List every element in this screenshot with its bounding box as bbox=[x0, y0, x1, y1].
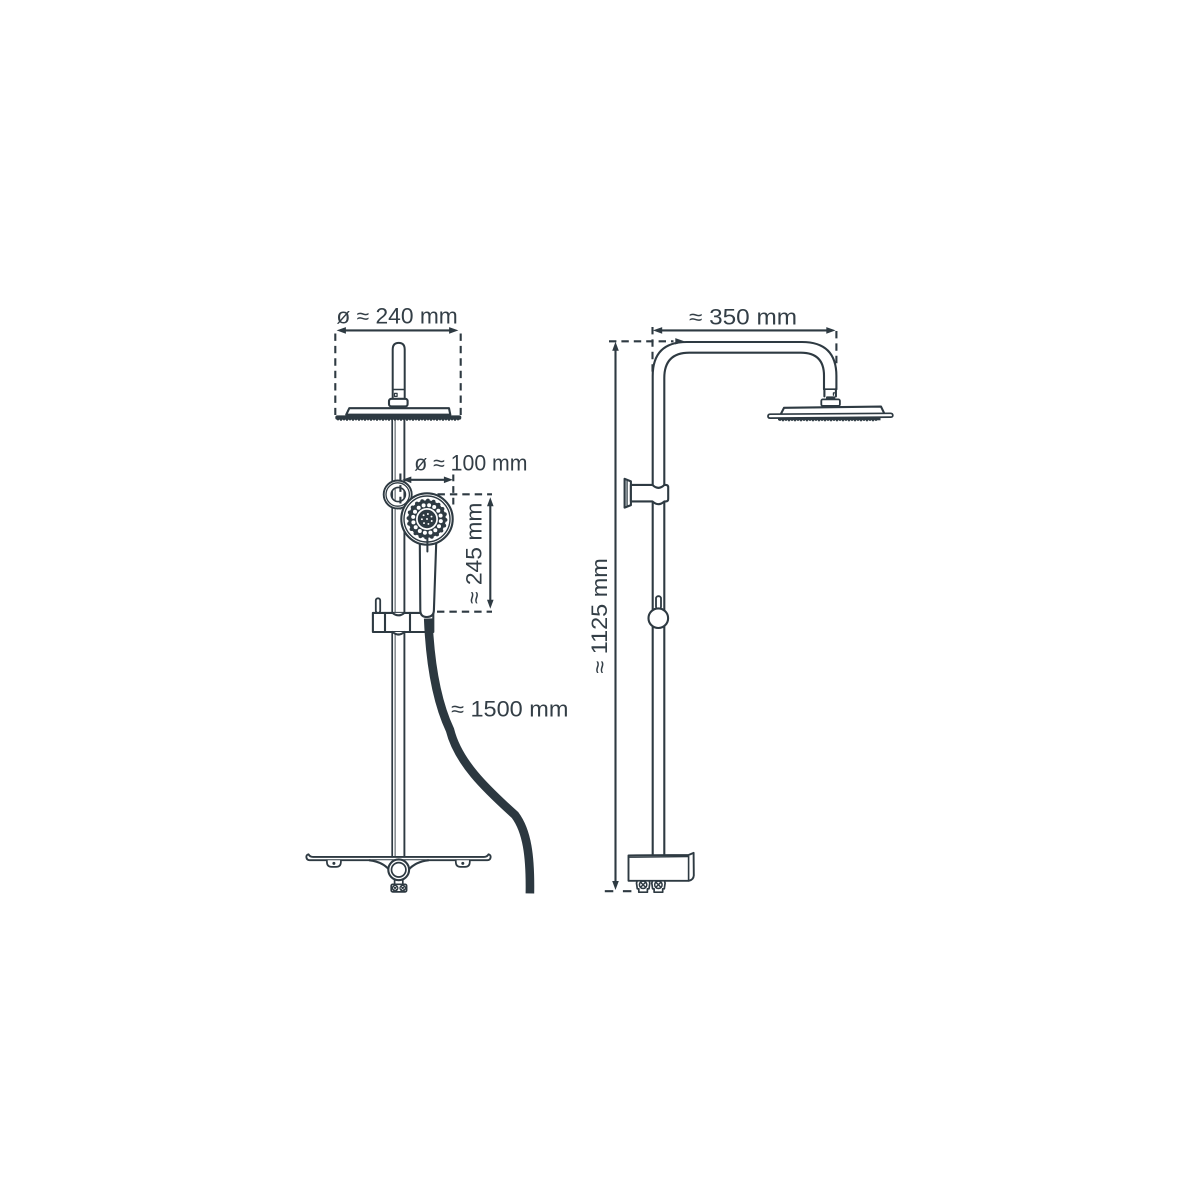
svg-text:≈ 350 mm: ≈ 350 mm bbox=[689, 305, 797, 330]
svg-text:ø ≈ 100 mm: ø ≈ 100 mm bbox=[414, 450, 527, 475]
svg-text:ø ≈ 240 mm: ø ≈ 240 mm bbox=[336, 303, 457, 328]
svg-text:≈ 1500 mm: ≈ 1500 mm bbox=[451, 697, 568, 722]
svg-text:≈ 1125 mm: ≈ 1125 mm bbox=[587, 558, 612, 674]
svg-text:≈ 245 mm: ≈ 245 mm bbox=[461, 503, 486, 605]
